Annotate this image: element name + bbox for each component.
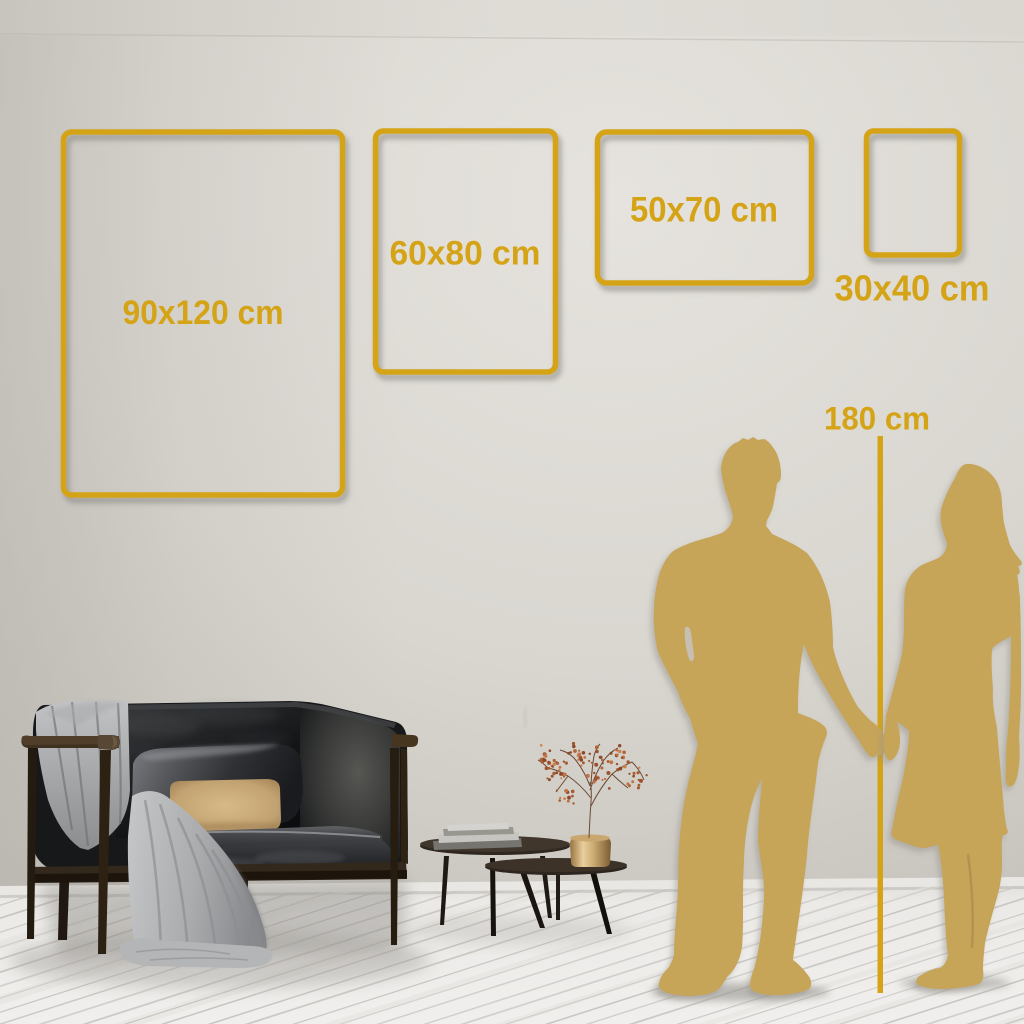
svg-text:50x70 cm: 50x70 cm: [630, 191, 778, 230]
svg-text:90x120 cm: 90x120 cm: [123, 294, 284, 332]
svg-text:60x80 cm: 60x80 cm: [390, 235, 541, 273]
svg-text:30x40 cm: 30x40 cm: [835, 268, 990, 309]
svg-text:180 cm: 180 cm: [824, 401, 930, 437]
